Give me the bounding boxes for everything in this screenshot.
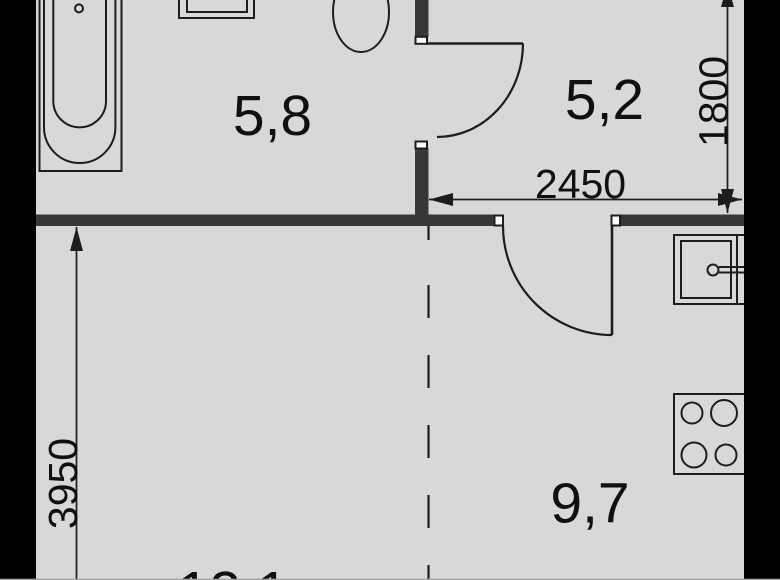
svg-text:1800: 1800 bbox=[691, 56, 737, 147]
svg-text:3950: 3950 bbox=[40, 438, 86, 529]
svg-text:5,8: 5,8 bbox=[233, 84, 312, 148]
svg-text:5,2: 5,2 bbox=[565, 68, 644, 132]
svg-text:9,7: 9,7 bbox=[550, 472, 629, 536]
svg-text:12,1: 12,1 bbox=[178, 560, 289, 580]
svg-text:2450: 2450 bbox=[535, 161, 626, 207]
